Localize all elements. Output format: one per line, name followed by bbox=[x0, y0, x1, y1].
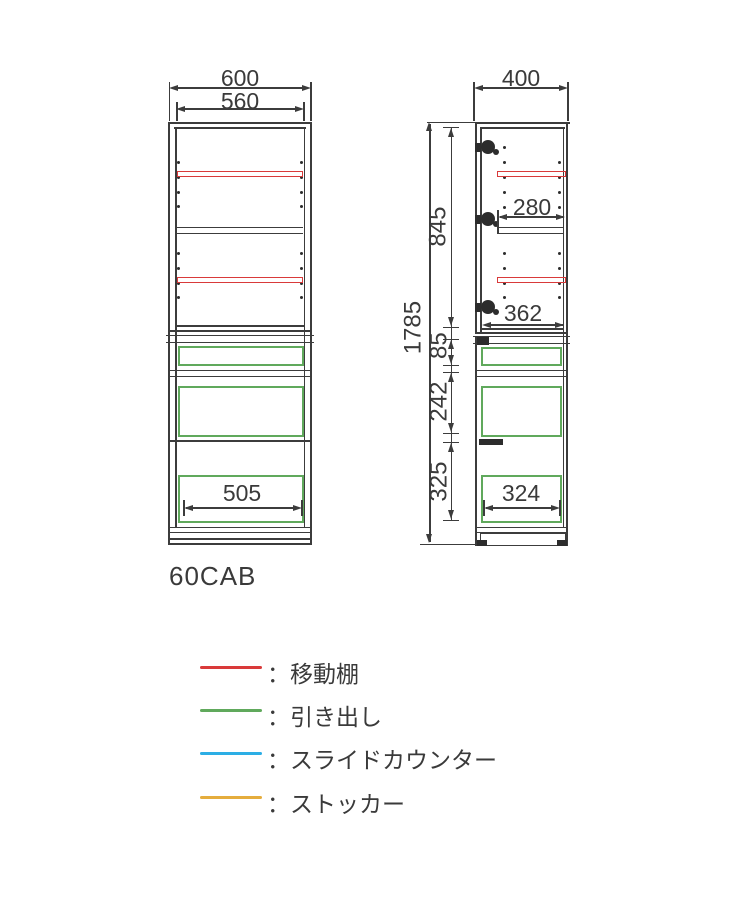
upper-bottom-inner bbox=[176, 325, 304, 327]
cabinet-top-inner bbox=[480, 127, 565, 129]
front-drawer-width-label: 505 bbox=[192, 481, 292, 505]
shelf-pin-hole bbox=[300, 161, 303, 164]
middle-drawer-side bbox=[481, 386, 562, 437]
side-lower-depth-label: 362 bbox=[492, 301, 554, 325]
arrowhead bbox=[426, 534, 432, 543]
side-middle-section-label: 242 bbox=[426, 370, 451, 434]
shelf-pin-hole bbox=[558, 267, 561, 270]
movable-shelf bbox=[497, 171, 566, 177]
side-drawer-depth-label: 324 bbox=[490, 481, 552, 505]
arrowhead bbox=[426, 122, 432, 131]
shelf-pin-hole bbox=[503, 267, 506, 270]
arrowhead bbox=[169, 85, 178, 91]
cabinet-right-edge bbox=[310, 122, 312, 545]
shelf-pin-hole bbox=[300, 296, 303, 299]
shelf-pin-hole bbox=[177, 205, 180, 208]
shelf-pin-hole bbox=[558, 161, 561, 164]
legend-separator: ： bbox=[267, 661, 290, 687]
dimension-line bbox=[477, 87, 565, 89]
movable-shelf bbox=[177, 171, 303, 177]
side-counter-section-label: 85 bbox=[426, 321, 451, 371]
arrowhead bbox=[176, 106, 185, 112]
shelf-pin-hole bbox=[177, 267, 180, 270]
base-bottom-edge bbox=[168, 543, 312, 545]
shelf-pin-hole bbox=[558, 252, 561, 255]
shelf-pin-hole bbox=[558, 191, 561, 194]
cabinet-left-edge bbox=[168, 122, 170, 545]
extension-tick bbox=[443, 520, 459, 522]
upper-bottom-inner bbox=[480, 328, 564, 330]
upper-bottom-edge bbox=[475, 332, 568, 334]
drawer-handle bbox=[479, 439, 503, 445]
small-drawer-side bbox=[481, 347, 562, 366]
drawer-divider-line bbox=[168, 440, 312, 442]
shelf-pin-hole bbox=[177, 296, 180, 299]
diagram-canvas: 600 560 bbox=[0, 0, 750, 900]
base-foot bbox=[557, 540, 567, 546]
dimension-line bbox=[500, 216, 564, 218]
hinge-icon bbox=[493, 149, 499, 155]
arrowhead bbox=[482, 322, 491, 328]
base-foot bbox=[477, 540, 487, 546]
door-front-line bbox=[475, 122, 477, 333]
cabinet-back-edge bbox=[566, 122, 568, 546]
legend-item-label: スライドカウンター bbox=[290, 747, 497, 773]
fixed-shelf bbox=[497, 227, 563, 234]
cabinet-top-inner bbox=[174, 127, 306, 129]
cabinet-top-edge bbox=[168, 122, 312, 124]
shelf-pin-hole bbox=[503, 191, 506, 194]
shelf-pin-hole bbox=[177, 252, 180, 255]
legend-item-label: 移動棚 bbox=[290, 661, 359, 687]
legend-label: ：引き出し bbox=[267, 698, 382, 732]
drawer-divider bbox=[475, 370, 568, 377]
front-width-inner-label: 560 bbox=[190, 89, 290, 113]
arrowhead bbox=[559, 85, 568, 91]
legend-label: ：スライドカウンター bbox=[267, 741, 497, 775]
cabinet-top-edge bbox=[475, 122, 570, 124]
legend-label: ：移動棚 bbox=[267, 655, 359, 689]
middle-drawer-front bbox=[178, 386, 304, 437]
shelf-pin-hole bbox=[503, 146, 506, 149]
drawer-swatch bbox=[200, 709, 262, 712]
movable-shelf-swatch bbox=[200, 666, 262, 669]
arrowhead bbox=[295, 106, 304, 112]
shelf-pin-hole bbox=[300, 252, 303, 255]
shelf-pin-hole bbox=[177, 161, 180, 164]
small-drawer-front bbox=[178, 346, 304, 366]
counter-top bbox=[166, 335, 314, 343]
side-upper-height-label: 845 bbox=[425, 187, 450, 267]
movable-shelf bbox=[497, 277, 566, 283]
arrowhead bbox=[551, 505, 560, 511]
shelf-pin-hole bbox=[558, 296, 561, 299]
shelf-pin-hole bbox=[300, 267, 303, 270]
drawer-divider bbox=[168, 370, 312, 377]
dimension-line bbox=[179, 108, 301, 110]
legend-item-label: 引き出し bbox=[290, 704, 382, 730]
arrowhead bbox=[474, 85, 483, 91]
shelf-pin-hole bbox=[503, 161, 506, 164]
base-line bbox=[168, 538, 312, 540]
shelf-pin-hole bbox=[300, 205, 303, 208]
cabinet-right-inner bbox=[304, 127, 306, 527]
arrowhead bbox=[184, 505, 193, 511]
shelf-pin-hole bbox=[177, 191, 180, 194]
dimension-line bbox=[486, 507, 557, 509]
side-bottom-section-label: 325 bbox=[426, 450, 451, 514]
base-rail bbox=[168, 527, 312, 533]
legend-separator: ： bbox=[267, 704, 290, 730]
shelf-pin-hole bbox=[503, 296, 506, 299]
arrowhead bbox=[302, 85, 311, 91]
legend-item-label: ストッカー bbox=[290, 791, 405, 817]
fixed-shelf bbox=[177, 227, 303, 234]
arrowhead bbox=[448, 128, 454, 137]
arrowhead bbox=[555, 322, 564, 328]
legend-label: ：ストッカー bbox=[267, 785, 405, 819]
movable-shelf bbox=[177, 277, 303, 283]
upper-bottom-edge bbox=[168, 330, 312, 332]
model-label: 60CAB bbox=[169, 561, 256, 592]
arrowhead bbox=[484, 505, 493, 511]
arrowhead bbox=[556, 214, 565, 220]
cabinet-left-inner bbox=[175, 127, 177, 527]
lower-front-edge bbox=[475, 336, 477, 546]
extension-line bbox=[427, 122, 475, 124]
slide-counter-swatch bbox=[200, 752, 262, 755]
base-plinth bbox=[480, 533, 566, 546]
shelf-pin-hole bbox=[503, 252, 506, 255]
dimension-line bbox=[186, 507, 299, 509]
legend-separator: ： bbox=[267, 791, 290, 817]
stocker-swatch bbox=[200, 796, 262, 799]
legend-separator: ： bbox=[267, 747, 290, 773]
side-total-height-label: 1785 bbox=[400, 283, 425, 373]
slide-counter-handle bbox=[476, 337, 489, 345]
shelf-pin-hole bbox=[300, 191, 303, 194]
dimension-line bbox=[485, 324, 563, 326]
arrowhead bbox=[293, 505, 302, 511]
extension-line bbox=[420, 544, 476, 546]
arrowhead bbox=[498, 214, 507, 220]
